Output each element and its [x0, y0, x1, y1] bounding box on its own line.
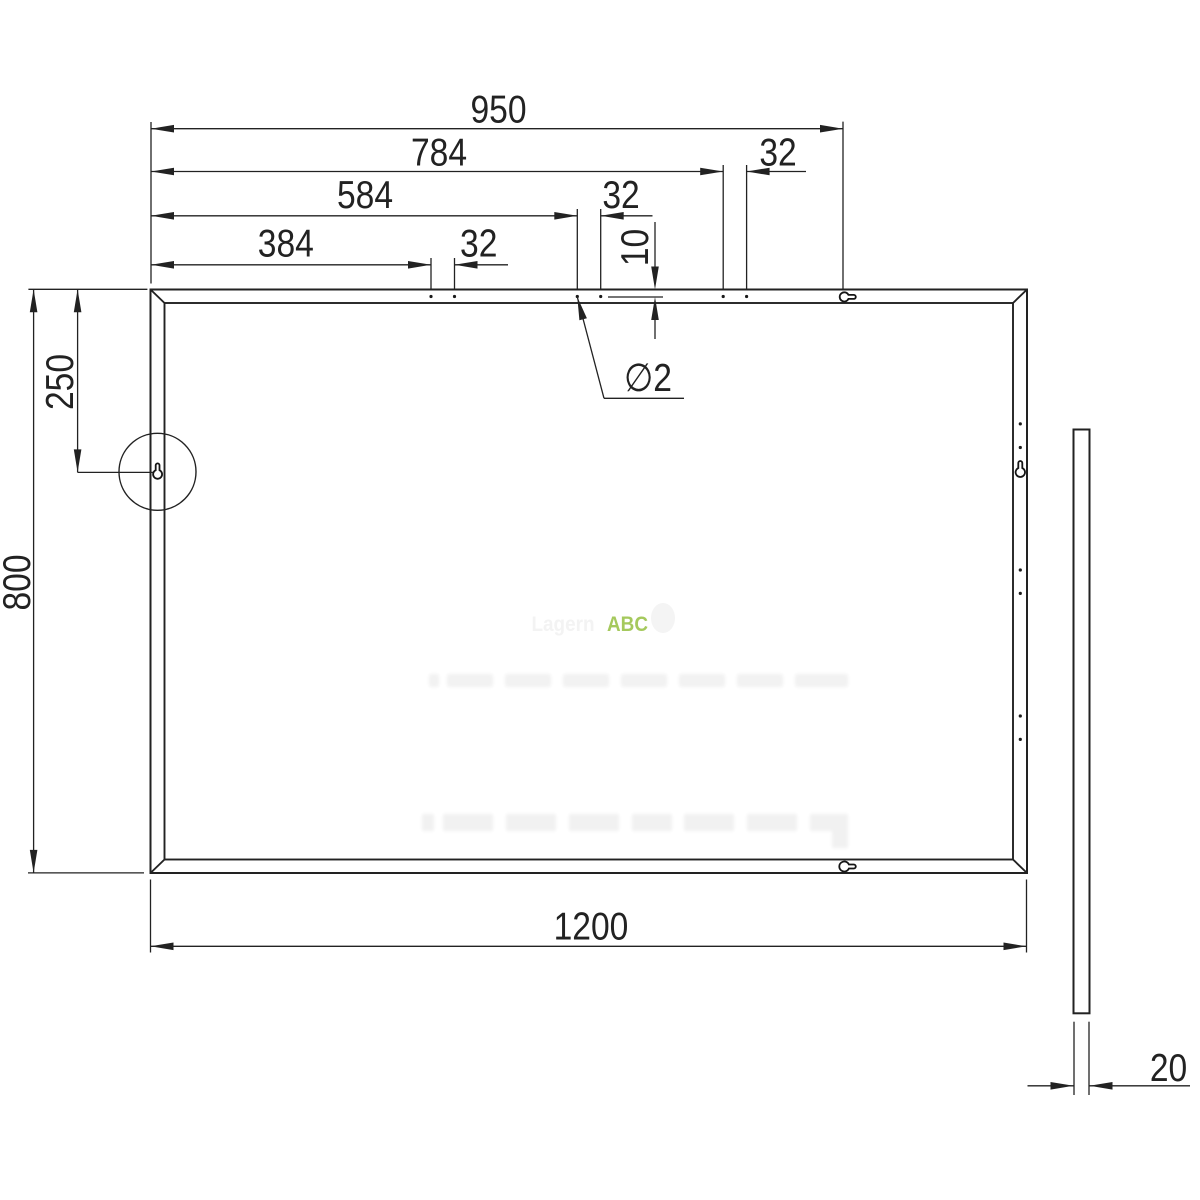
- svg-text:800: 800: [0, 554, 39, 610]
- svg-text:784: 784: [411, 130, 467, 174]
- svg-text:384: 384: [258, 221, 314, 265]
- svg-text:584: 584: [337, 173, 393, 217]
- svg-text:32: 32: [602, 173, 639, 217]
- svg-text:32: 32: [460, 221, 497, 265]
- svg-text:250: 250: [38, 354, 82, 410]
- svg-text:ABC: ABC: [607, 613, 648, 636]
- svg-text:950: 950: [470, 87, 526, 131]
- svg-text:Lagern: Lagern: [532, 613, 595, 636]
- svg-text:10: 10: [613, 229, 657, 266]
- svg-text:1200: 1200: [554, 904, 629, 948]
- svg-text:20: 20: [1150, 1046, 1187, 1090]
- svg-text:32: 32: [759, 130, 796, 174]
- svg-text:∅2: ∅2: [624, 356, 672, 400]
